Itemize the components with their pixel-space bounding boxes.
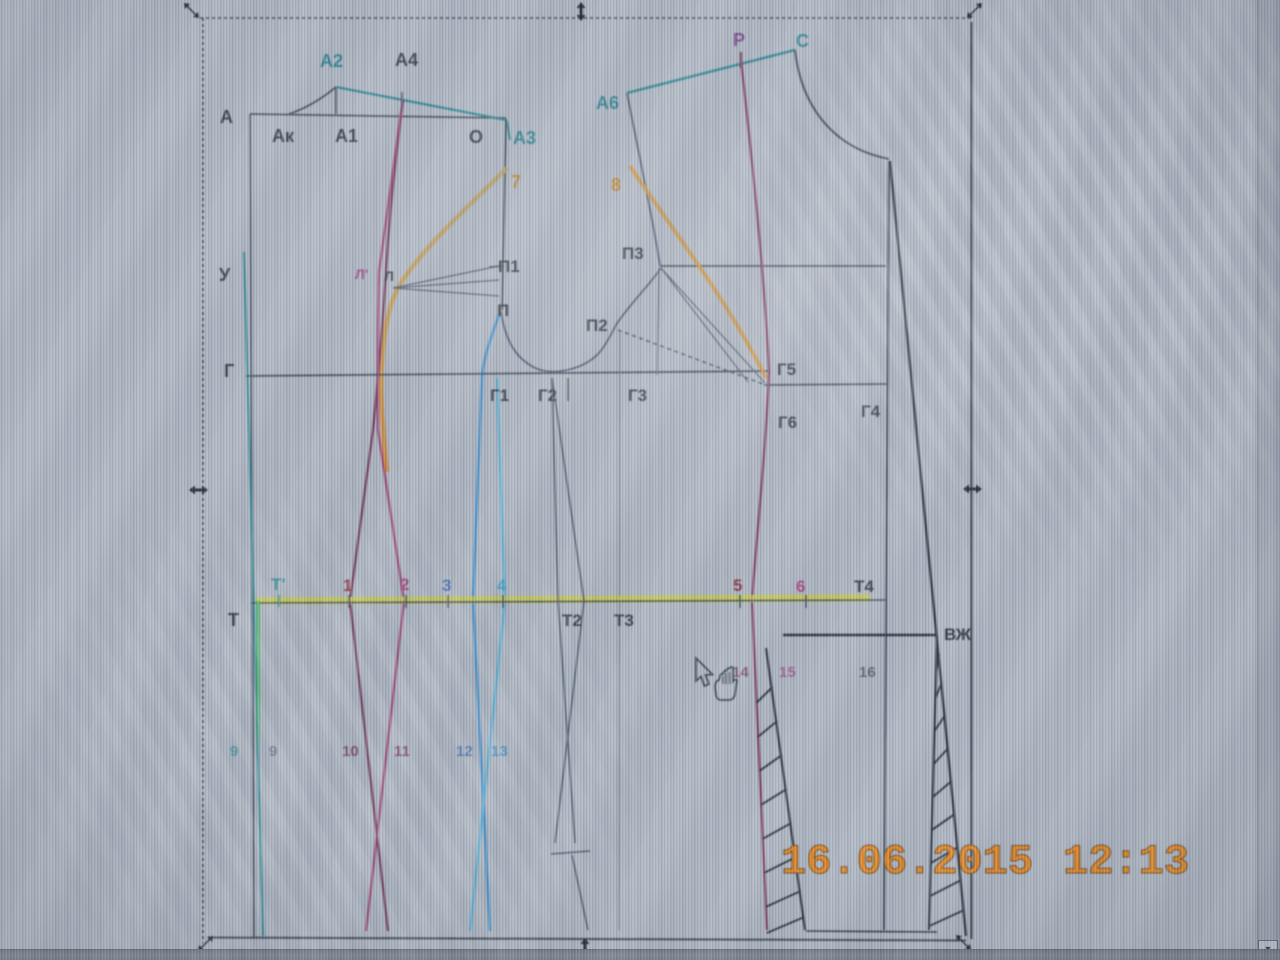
svg-text:Ак: Ак: [272, 126, 295, 146]
svg-text:Р: Р: [733, 30, 745, 50]
svg-text:А2: А2: [320, 51, 343, 71]
svg-text:7: 7: [511, 172, 521, 192]
svg-text:П: П: [497, 301, 509, 320]
svg-text:Т2: Т2: [562, 611, 582, 630]
svg-text:Г2: Г2: [538, 386, 557, 405]
svg-text:10: 10: [342, 743, 359, 760]
svg-text:2: 2: [400, 575, 409, 594]
svg-text:Г6: Г6: [778, 413, 797, 432]
svg-text:О: О: [469, 127, 483, 147]
svg-text:4: 4: [497, 576, 507, 595]
svg-text:А6: А6: [596, 93, 619, 113]
svg-text:6: 6: [796, 577, 805, 596]
svg-text:А3: А3: [513, 128, 536, 148]
svg-text:П3: П3: [622, 244, 644, 263]
svg-text:Л: Л: [384, 268, 394, 284]
svg-text:А: А: [220, 107, 233, 127]
svg-text:П2: П2: [586, 316, 608, 335]
svg-text:Г3: Г3: [628, 386, 647, 405]
svg-text:Л': Л': [355, 266, 368, 282]
svg-text:15: 15: [779, 664, 796, 681]
svg-text:12: 12: [456, 743, 473, 760]
svg-text:3: 3: [442, 576, 451, 595]
svg-text:13: 13: [491, 743, 508, 760]
svg-text:14: 14: [732, 664, 749, 681]
svg-text:16.06.2015: 16.06.2015: [781, 838, 1033, 886]
svg-text:У: У: [219, 265, 231, 285]
svg-text:8: 8: [611, 175, 621, 195]
svg-text:Г5: Г5: [777, 360, 796, 379]
svg-text:Т': Т': [271, 575, 285, 594]
svg-text:Г: Г: [224, 361, 234, 381]
svg-text:11: 11: [394, 743, 410, 760]
svg-text:ВЖ: ВЖ: [944, 625, 972, 644]
svg-text:9: 9: [230, 743, 238, 760]
svg-text:А1: А1: [335, 126, 358, 146]
svg-text:Г4: Г4: [861, 402, 881, 421]
svg-text:С: С: [796, 31, 809, 51]
svg-text:Т3: Т3: [614, 611, 634, 630]
svg-text:Г1: Г1: [490, 386, 509, 405]
svg-text:1: 1: [343, 576, 352, 595]
svg-text:А4: А4: [395, 50, 418, 70]
svg-text:Т4: Т4: [854, 577, 874, 596]
svg-text:9: 9: [269, 743, 277, 760]
svg-text:Т: Т: [228, 610, 239, 630]
svg-text:16: 16: [859, 664, 876, 681]
svg-text:П1: П1: [498, 257, 520, 276]
svg-text:5: 5: [733, 576, 742, 595]
svg-text:12:13: 12:13: [1063, 838, 1189, 886]
